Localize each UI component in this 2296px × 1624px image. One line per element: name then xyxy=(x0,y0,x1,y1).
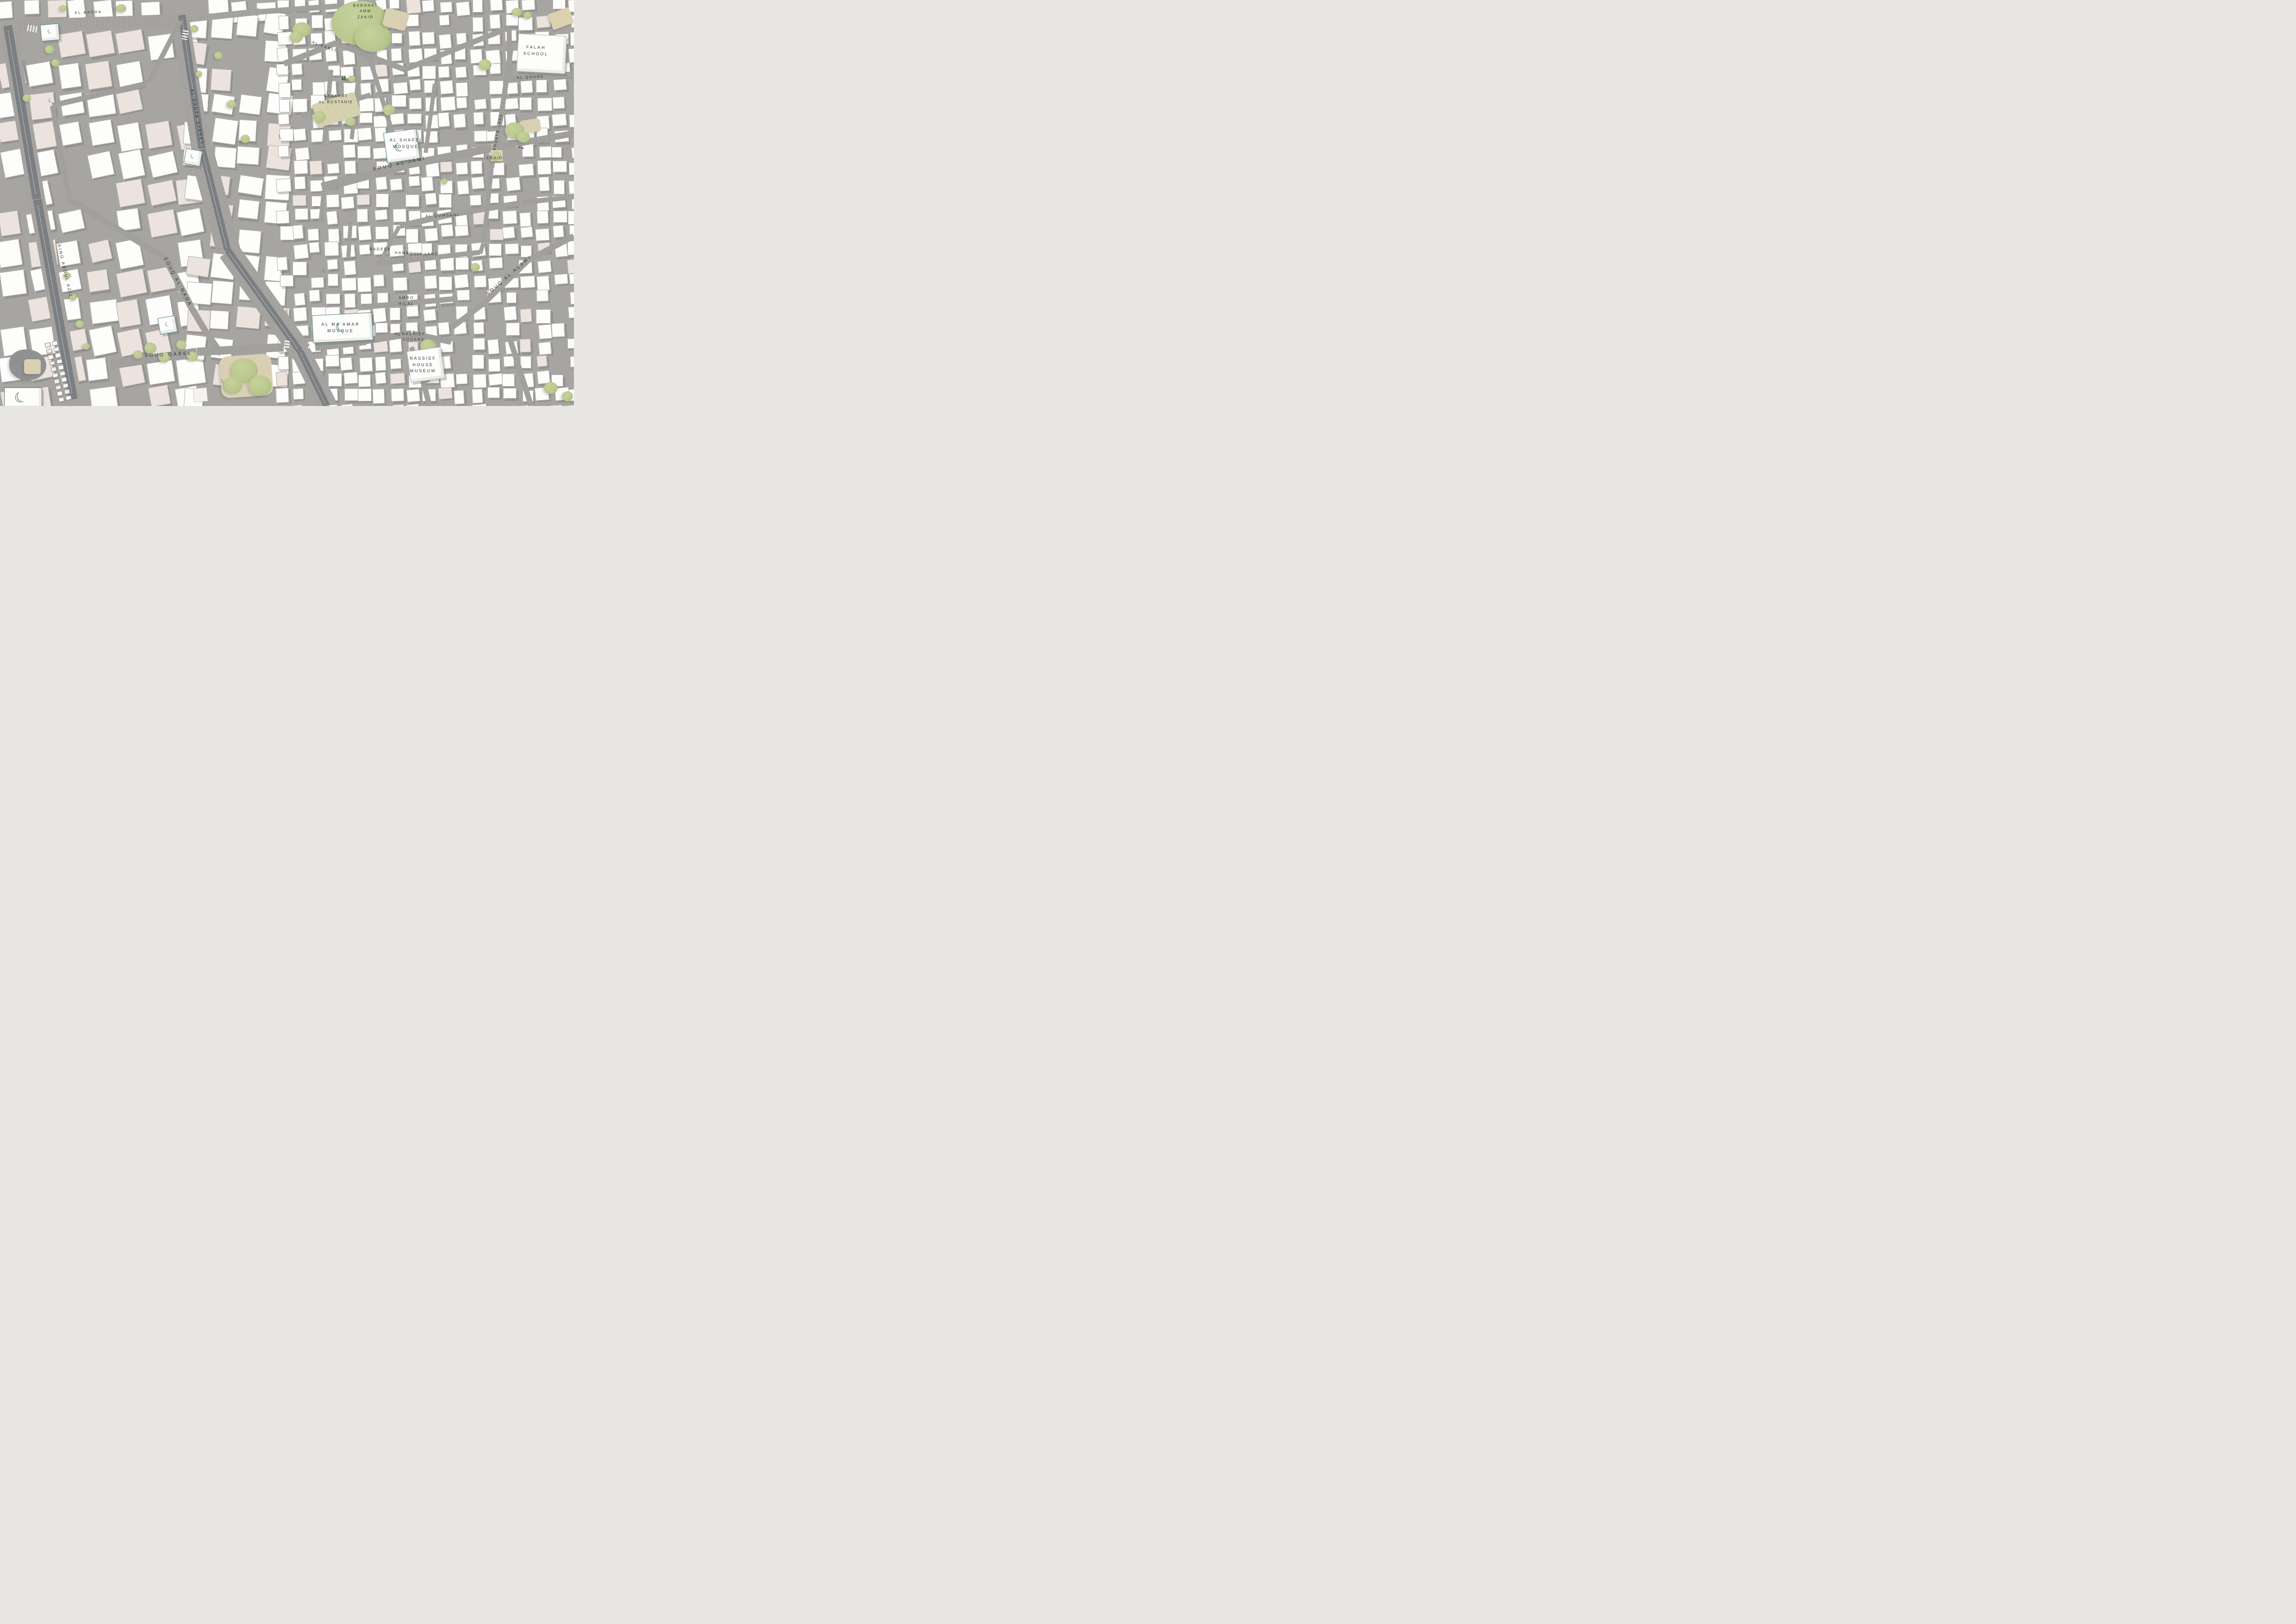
building-block xyxy=(424,228,438,242)
park-green xyxy=(385,110,391,116)
building-block xyxy=(554,274,569,285)
building-block xyxy=(520,338,531,352)
map-label-line: NASSIEF xyxy=(402,331,425,337)
building-block xyxy=(408,31,421,46)
building-block xyxy=(278,16,289,30)
building-block xyxy=(85,61,112,90)
building-block xyxy=(441,406,453,406)
market-stall xyxy=(54,379,60,384)
building-block xyxy=(506,292,516,303)
building-block xyxy=(375,356,386,371)
building-block xyxy=(373,274,384,287)
building-block xyxy=(488,373,503,386)
map-label-line: AL BASHA xyxy=(75,9,102,16)
park-green xyxy=(227,100,236,108)
transit-stop-icon: T xyxy=(342,76,346,80)
courtyard-tan xyxy=(24,359,41,374)
building-block xyxy=(453,113,466,128)
building-block xyxy=(358,225,372,241)
building-block xyxy=(570,292,574,305)
building-block xyxy=(569,114,574,128)
building-block xyxy=(328,130,342,141)
building-block xyxy=(539,146,552,158)
building-block xyxy=(58,209,86,233)
street-segment xyxy=(506,28,512,79)
building-block xyxy=(423,308,437,321)
building-block xyxy=(294,176,306,190)
building-block xyxy=(343,260,357,275)
building-block xyxy=(471,403,487,406)
park-green xyxy=(196,71,202,77)
building-block xyxy=(373,388,385,404)
building-block xyxy=(440,224,453,237)
building-block xyxy=(409,98,422,110)
building-block xyxy=(438,194,451,208)
building-block xyxy=(520,212,532,227)
building-block xyxy=(504,98,519,110)
building-block xyxy=(503,388,516,399)
map-label-line: EBAID xyxy=(486,156,503,161)
building-block xyxy=(147,209,178,238)
building-block xyxy=(456,162,468,175)
building-block xyxy=(536,290,548,302)
building-block xyxy=(357,127,372,141)
building-block xyxy=(538,324,552,339)
building-block xyxy=(24,0,40,15)
building-block xyxy=(473,322,485,335)
building-block xyxy=(566,259,574,274)
building-block xyxy=(292,99,308,113)
market-stall xyxy=(56,358,62,364)
building-block xyxy=(553,225,565,238)
building-block xyxy=(176,208,204,237)
street-mat xyxy=(395,333,397,335)
park-green xyxy=(51,59,60,67)
building-block xyxy=(391,48,403,61)
building-block xyxy=(552,147,562,158)
crosswalk-stripes xyxy=(284,339,290,348)
building-block xyxy=(505,177,521,192)
park-green xyxy=(346,118,356,126)
building-block xyxy=(473,275,486,288)
building-block xyxy=(278,113,289,125)
building-block xyxy=(405,194,419,207)
building-block xyxy=(86,30,115,57)
park-green xyxy=(471,263,480,271)
building-block xyxy=(311,15,323,29)
building-block xyxy=(537,97,552,111)
park-green xyxy=(82,343,90,350)
building-block xyxy=(115,29,145,54)
building-block xyxy=(422,66,436,79)
building-block xyxy=(292,195,307,206)
building-block xyxy=(326,211,337,225)
building-block xyxy=(374,209,388,221)
building-block xyxy=(89,386,118,406)
building-block xyxy=(440,1,452,12)
building-block xyxy=(536,80,547,93)
building-block xyxy=(488,358,501,372)
building-block xyxy=(0,269,27,296)
building-block xyxy=(375,322,388,333)
map-label-al-basha: AL BASHA xyxy=(75,9,102,16)
street-mat xyxy=(521,147,523,149)
building-block xyxy=(536,355,548,367)
road-segment xyxy=(225,248,303,353)
building-block xyxy=(522,144,534,157)
building-block xyxy=(471,176,485,190)
building-block xyxy=(211,280,234,304)
building-block xyxy=(487,339,499,355)
building-block xyxy=(86,357,108,381)
building-block xyxy=(570,356,574,368)
building-block xyxy=(455,66,467,78)
building-block xyxy=(406,404,420,406)
building-block xyxy=(237,199,260,220)
building-block xyxy=(409,79,421,91)
building-block xyxy=(502,374,515,387)
building-block xyxy=(356,209,368,223)
market-stall xyxy=(55,352,61,358)
building-block xyxy=(324,241,339,256)
building-block xyxy=(553,211,567,223)
building-block xyxy=(341,404,353,406)
park-green xyxy=(313,111,326,122)
building-block xyxy=(325,355,339,367)
building-block xyxy=(537,160,551,175)
building-block xyxy=(554,180,565,194)
building-block xyxy=(292,79,302,91)
building-block xyxy=(116,269,147,298)
building-block xyxy=(568,211,574,225)
building-block xyxy=(471,160,483,174)
building-block xyxy=(359,244,371,255)
building-block xyxy=(393,82,408,95)
building-block xyxy=(341,196,355,209)
building-block xyxy=(473,0,483,12)
city-map-canvas: T☾☾☾☾☾☾☾☾☾☾AL BASHABARAHATAMMZAKIRAL KAB… xyxy=(0,0,574,406)
building-block xyxy=(472,17,483,31)
building-block xyxy=(291,63,303,75)
building-block xyxy=(421,176,434,192)
building-block xyxy=(504,306,517,321)
building-block xyxy=(295,147,310,161)
building-block xyxy=(280,275,293,287)
building-block xyxy=(470,195,482,206)
building-block xyxy=(536,309,551,324)
building-block xyxy=(504,244,519,255)
building-block xyxy=(211,69,232,92)
market-stall xyxy=(52,372,58,378)
building-block xyxy=(568,48,574,63)
building-block xyxy=(148,150,178,178)
map-label-al-qumsani: AL QUMSANI xyxy=(425,212,459,219)
building-block xyxy=(424,275,437,289)
building-block xyxy=(535,228,550,241)
map-label-line: HAMBOULI LANE xyxy=(395,250,438,257)
building-block xyxy=(357,194,370,205)
building-block xyxy=(393,277,408,291)
map-label-al-maamar-mosque: AL MA'AMARMOSQUE xyxy=(321,321,360,335)
building-block xyxy=(115,89,143,115)
map-label-line: AMRO xyxy=(398,295,414,301)
market-stall xyxy=(58,364,64,370)
building-block xyxy=(536,275,550,291)
building-block xyxy=(440,162,453,173)
market-stall xyxy=(61,377,67,382)
building-block xyxy=(570,32,574,46)
building-block xyxy=(59,121,82,146)
map-label-hambouli-lane: HAMBOULI LANE xyxy=(395,250,438,257)
map-label-falah-school: FALAHSCHOOL xyxy=(523,44,548,58)
street-mat xyxy=(516,145,518,147)
park-green xyxy=(517,131,530,143)
building-block xyxy=(175,356,206,387)
building-block xyxy=(276,371,288,386)
building-block xyxy=(309,290,320,302)
building-block xyxy=(518,163,534,176)
building-block xyxy=(326,294,341,305)
building-block xyxy=(571,146,574,159)
building-block xyxy=(342,277,357,291)
building-block xyxy=(520,226,533,238)
building-block xyxy=(405,0,421,14)
map-label-barahat-al-bostanie: BARAHATAL BOSTANIE xyxy=(319,94,353,106)
building-block xyxy=(554,79,567,91)
building-block xyxy=(278,356,289,370)
map-label-amro-hilal: AMROHILAL xyxy=(398,295,414,307)
building-block xyxy=(115,178,145,207)
building-block xyxy=(567,405,574,406)
building-block xyxy=(438,387,453,400)
building-block xyxy=(26,61,54,87)
building-block xyxy=(489,14,501,29)
building-block xyxy=(275,387,289,403)
building-block xyxy=(327,163,340,174)
building-block xyxy=(344,161,356,175)
building-block xyxy=(373,307,387,323)
building-block xyxy=(279,99,290,112)
park-green xyxy=(348,75,355,82)
path-cross xyxy=(193,388,207,402)
building-block xyxy=(88,119,114,146)
park-green xyxy=(523,12,532,19)
building-block xyxy=(568,273,574,285)
building-block xyxy=(278,145,290,157)
building-block xyxy=(311,277,324,288)
building-block xyxy=(340,357,353,371)
park-green xyxy=(355,24,392,52)
building-block xyxy=(116,299,142,328)
building-block xyxy=(438,322,450,335)
building-block xyxy=(293,160,308,174)
building-block xyxy=(567,241,574,256)
park-green xyxy=(241,135,250,143)
building-block xyxy=(359,357,373,372)
building-block xyxy=(376,194,389,207)
building-block xyxy=(536,211,548,224)
building-block xyxy=(407,113,422,124)
building-block xyxy=(502,210,517,225)
building-block xyxy=(552,97,565,109)
map-label-line: AL BOSTANIE xyxy=(319,100,353,106)
park-green xyxy=(224,376,243,393)
market-stall xyxy=(55,385,62,390)
building-block xyxy=(489,244,502,256)
building-block xyxy=(506,322,520,335)
building-block xyxy=(375,372,386,384)
building-block xyxy=(327,259,338,270)
building-block xyxy=(567,338,574,349)
building-block xyxy=(292,225,304,239)
market-stall xyxy=(65,395,72,400)
building-block xyxy=(375,176,387,190)
park-green xyxy=(290,31,303,43)
map-label-line: BARAHAT xyxy=(353,3,378,8)
market-stall xyxy=(53,346,60,352)
building-block xyxy=(236,146,260,165)
building-block xyxy=(293,128,306,141)
street-mat xyxy=(518,146,521,148)
building-block xyxy=(292,262,307,275)
building-block xyxy=(89,299,119,325)
street-segment xyxy=(319,190,326,223)
building-block xyxy=(568,306,574,319)
building-block xyxy=(473,112,484,125)
building-block xyxy=(440,96,456,111)
market-stall xyxy=(56,391,63,396)
park-green xyxy=(59,5,67,12)
building-block xyxy=(358,388,372,401)
map-label-line: AL QUMSANI xyxy=(425,212,459,219)
building-block xyxy=(148,384,171,406)
building-block xyxy=(502,226,515,239)
building-block xyxy=(539,177,550,192)
building-block xyxy=(307,228,319,241)
map-label-line: AMM xyxy=(353,9,378,14)
building-block xyxy=(455,82,468,97)
building-block xyxy=(538,341,552,355)
building-block xyxy=(342,144,356,158)
building-block xyxy=(553,0,566,9)
park-green xyxy=(75,320,84,328)
building-block xyxy=(552,113,567,127)
building-block xyxy=(473,374,486,388)
building-block xyxy=(392,209,406,223)
map-label-line: SQUARE xyxy=(402,337,425,343)
park-green xyxy=(441,179,448,184)
building-block xyxy=(472,354,484,369)
market-stall xyxy=(48,354,54,360)
building-block xyxy=(57,30,86,58)
building-block xyxy=(328,373,342,387)
market-stall xyxy=(50,366,57,372)
building-block xyxy=(328,228,340,243)
building-block xyxy=(88,239,113,263)
building-block xyxy=(344,294,355,308)
building-block xyxy=(357,277,372,292)
park-green xyxy=(116,4,126,12)
building-block xyxy=(489,80,504,94)
building-block xyxy=(276,178,291,193)
building-block xyxy=(212,118,238,145)
park-green xyxy=(479,59,492,70)
building-block xyxy=(455,373,467,385)
market-stall xyxy=(49,360,56,366)
map-label-nassief-house-museum: NASSIEFHOUSEMUSEUM xyxy=(410,356,436,375)
building-block xyxy=(568,180,574,194)
building-block xyxy=(438,66,450,78)
park-green xyxy=(562,391,573,401)
building-block xyxy=(276,210,290,224)
map-label-line: BADEEB xyxy=(370,247,392,252)
building-block xyxy=(487,387,500,398)
building-block xyxy=(118,149,145,180)
building-block xyxy=(375,226,389,239)
building-block xyxy=(390,373,405,384)
building-block xyxy=(392,95,406,107)
building-block xyxy=(456,97,467,109)
building-block xyxy=(145,120,173,149)
building-block xyxy=(456,180,469,195)
building-block xyxy=(489,257,503,269)
map-label-line: HILAL xyxy=(398,301,414,307)
street-mat xyxy=(398,334,400,336)
map-label-line: MOSQUE xyxy=(321,328,360,334)
building-block xyxy=(425,193,437,205)
market-stall xyxy=(59,371,66,376)
park-green xyxy=(214,52,223,59)
building-block xyxy=(357,145,371,158)
park-green xyxy=(45,45,54,54)
market-stall xyxy=(64,389,70,394)
market-stall xyxy=(62,383,69,388)
map-label-al-shafei-mosque: AL SHAFEIMOSQUE xyxy=(390,137,422,150)
building-block xyxy=(277,256,288,270)
park-green xyxy=(23,94,31,102)
building-block xyxy=(293,307,307,322)
park-green xyxy=(249,375,272,396)
building-block xyxy=(490,229,504,240)
building-block xyxy=(520,80,533,93)
building-block xyxy=(390,178,403,191)
building-block xyxy=(359,112,373,124)
building-block xyxy=(343,372,358,384)
park-green xyxy=(133,350,143,359)
building-block xyxy=(520,308,532,323)
building-block xyxy=(0,210,21,237)
building-block xyxy=(87,150,115,179)
building-block xyxy=(472,389,483,404)
building-block xyxy=(238,175,264,196)
building-block xyxy=(0,1,13,19)
building-block xyxy=(568,162,574,175)
building-block xyxy=(490,0,503,11)
building-block xyxy=(361,293,372,304)
building-block xyxy=(391,388,405,402)
building-block xyxy=(455,1,470,17)
map-label-ebaid: EBAID xyxy=(486,156,503,161)
building-block xyxy=(389,0,400,9)
building-block xyxy=(440,80,454,94)
building-block xyxy=(86,269,109,293)
building-block xyxy=(519,97,532,110)
building-block xyxy=(326,194,340,208)
building-block xyxy=(276,405,288,406)
building-block xyxy=(292,388,304,400)
map-label-badeeb: BADEEB xyxy=(370,247,392,252)
building-block xyxy=(309,242,320,253)
